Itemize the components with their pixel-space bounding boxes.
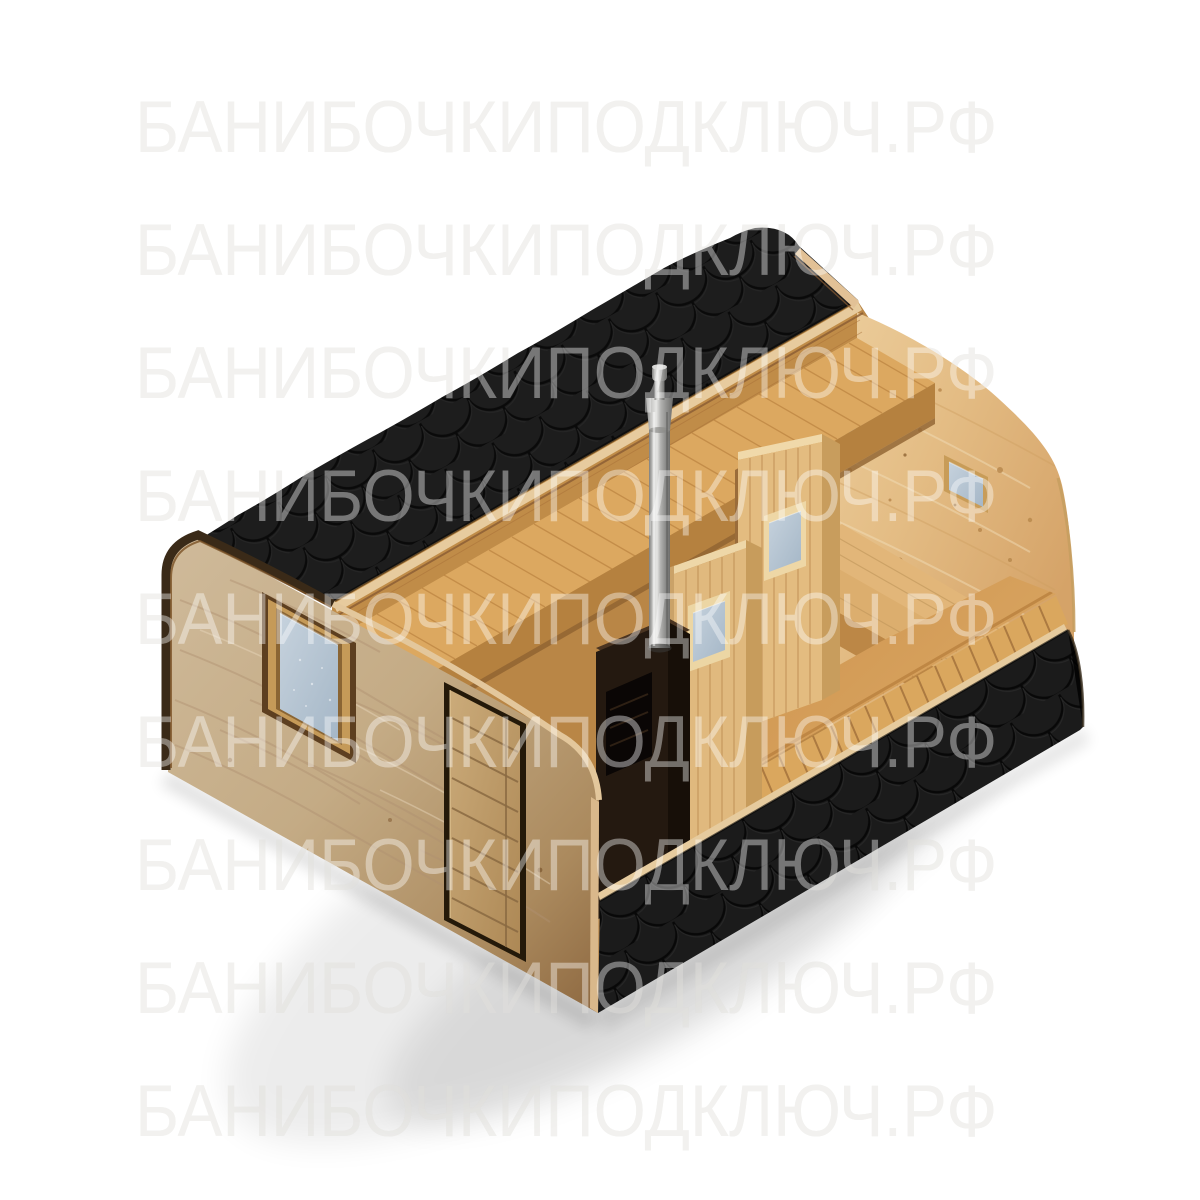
screenshot-root: БАНИБОЧКИПОДКЛЮЧ.РФ БАНИБОЧКИПОДКЛЮЧ.РФ … [0,0,1200,1200]
front-wall-edge-strip [590,797,599,1013]
chimney [646,364,673,652]
front-door [444,682,526,962]
sauna-render [0,0,1200,1200]
chimney-cap [652,364,667,381]
